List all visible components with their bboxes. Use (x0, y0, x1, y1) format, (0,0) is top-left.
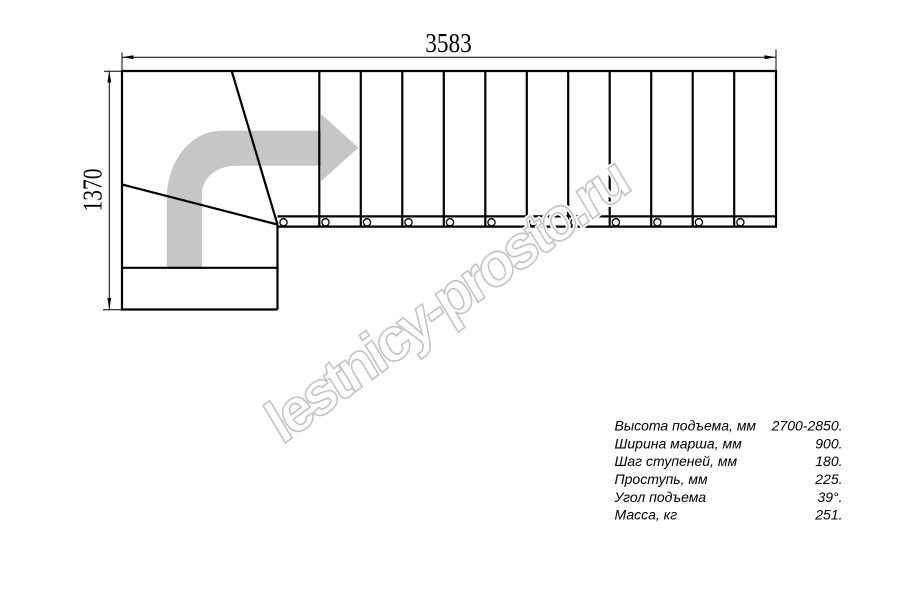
svg-text:Масса, кг: Масса, кг (615, 507, 678, 523)
svg-text:900.: 900. (815, 435, 842, 451)
svg-text:Шаг ступеней, мм: Шаг ступеней, мм (615, 453, 738, 469)
svg-text:225.: 225. (814, 471, 842, 487)
svg-text:Проступь, мм: Проступь, мм (615, 471, 709, 487)
svg-text:180.: 180. (815, 453, 842, 469)
svg-text:Ширина марша, мм: Ширина марша, мм (615, 435, 743, 451)
svg-text:1370: 1370 (78, 169, 108, 212)
svg-text:Угол подъема: Угол подъема (614, 489, 707, 505)
svg-text:251.: 251. (814, 507, 842, 523)
svg-text:39°.: 39°. (817, 489, 842, 505)
svg-text:2700-2850.: 2700-2850. (771, 418, 843, 434)
svg-text:Высота подъема, мм: Высота подъема, мм (615, 418, 757, 434)
svg-text:lestnicy-prosto.ru: lestnicy-prosto.ru (254, 144, 638, 456)
svg-text:3583: 3583 (425, 28, 472, 58)
